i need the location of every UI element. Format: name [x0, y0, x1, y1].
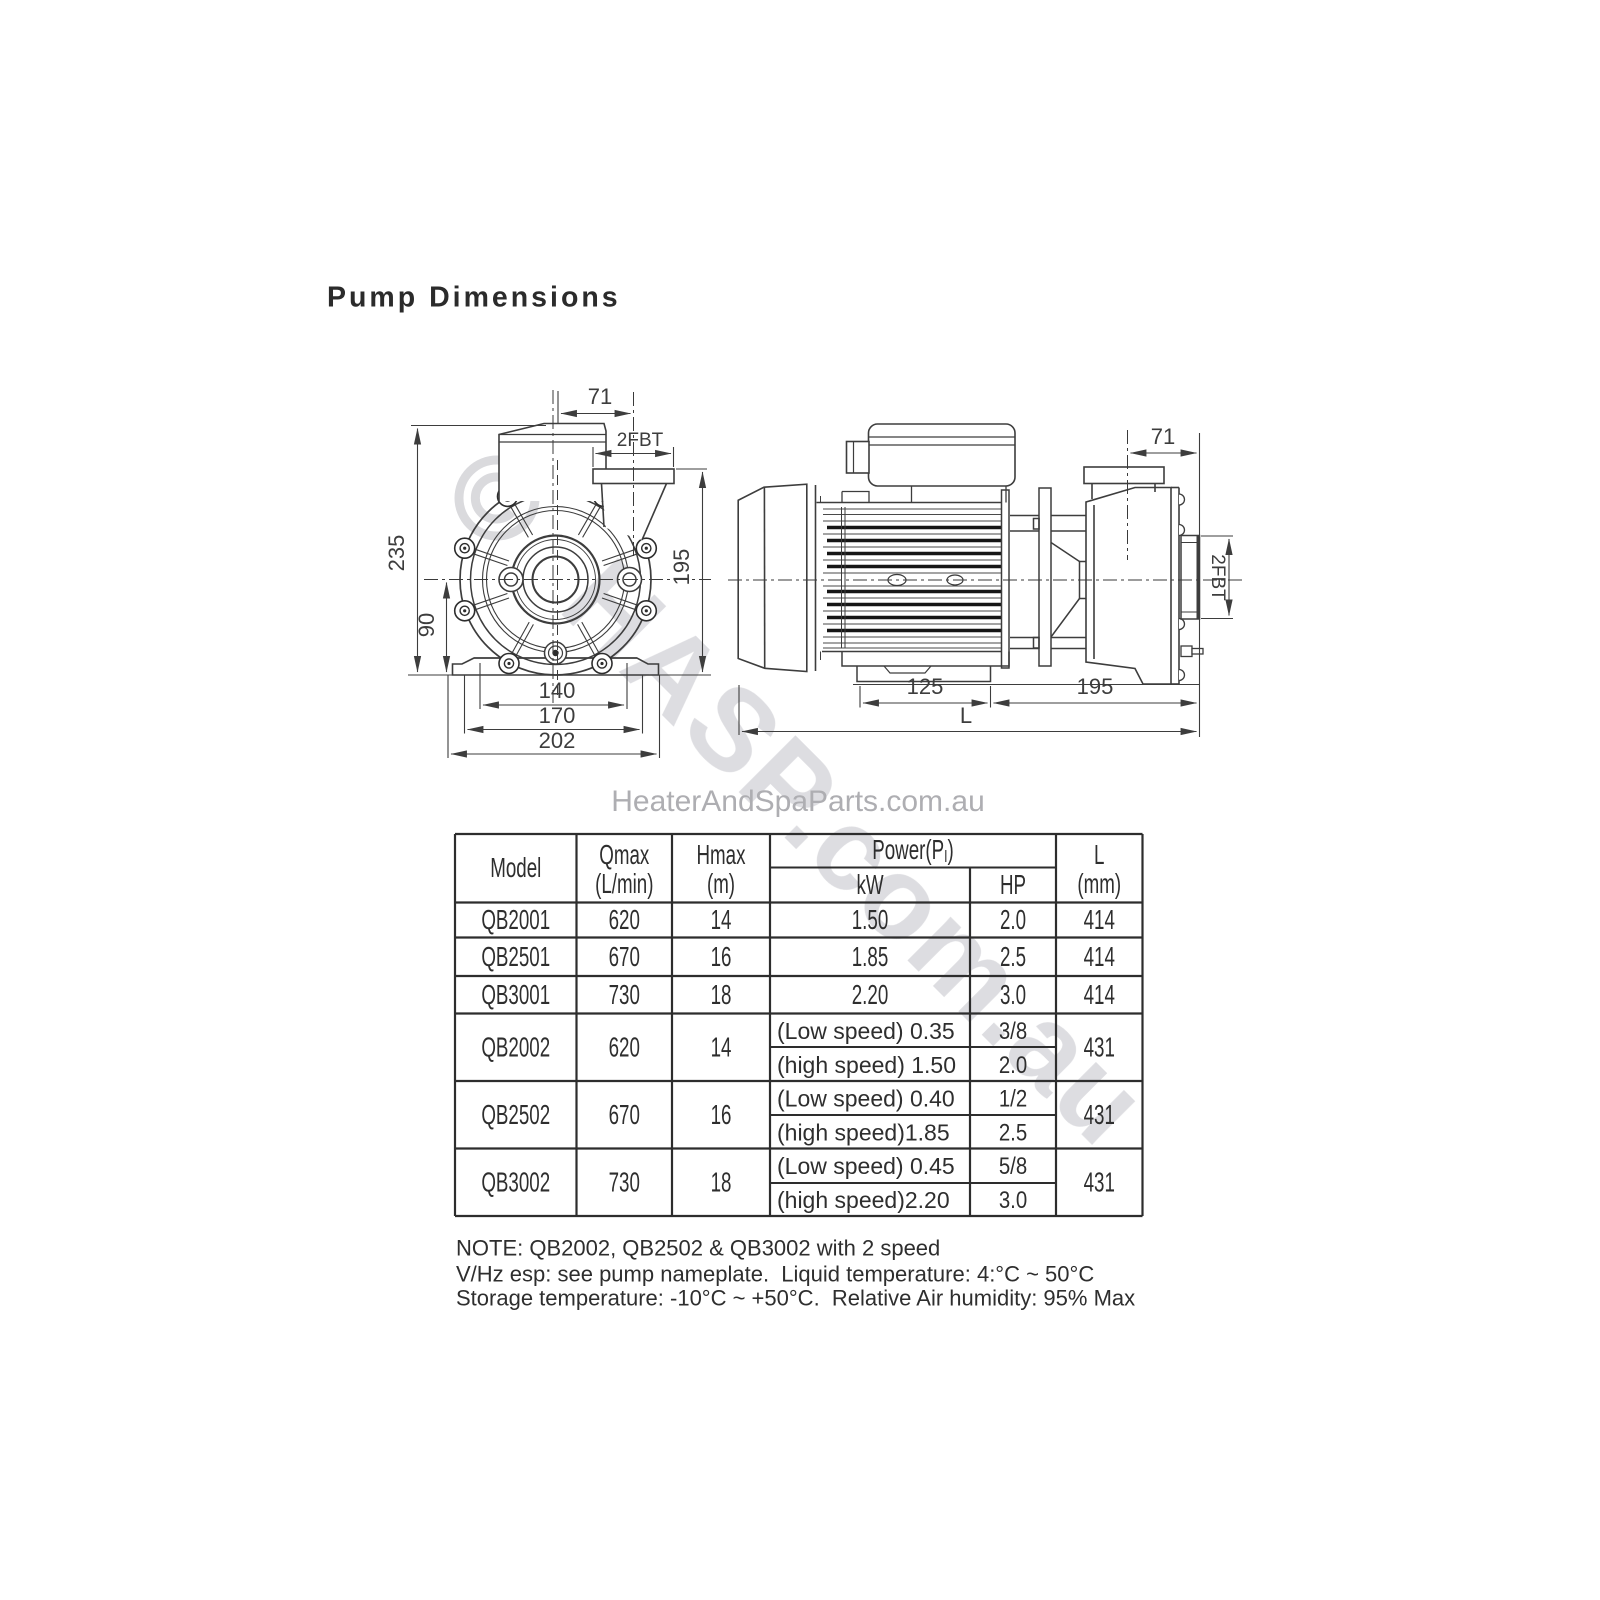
svg-text:195: 195 — [1077, 674, 1114, 699]
svg-text:kW: kW — [856, 869, 883, 901]
svg-text:2.0: 2.0 — [1000, 904, 1026, 936]
svg-text:1/2: 1/2 — [999, 1085, 1027, 1112]
svg-text:QB2501: QB2501 — [481, 941, 550, 973]
svg-text:2.5: 2.5 — [1000, 941, 1026, 973]
svg-text:414: 414 — [1084, 904, 1115, 936]
svg-text:431: 431 — [1084, 1032, 1115, 1064]
svg-text:2FBT: 2FBT — [617, 430, 664, 451]
svg-text:5/8: 5/8 — [999, 1152, 1027, 1179]
svg-text:L: L — [960, 703, 972, 728]
svg-text:1.50: 1.50 — [852, 904, 889, 936]
svg-text:(m): (m) — [707, 868, 735, 900]
svg-text:(Low speed) 0.40: (Low speed) 0.40 — [777, 1086, 955, 1112]
svg-text:Hmax: Hmax — [697, 839, 746, 871]
svg-text:414: 414 — [1084, 941, 1115, 973]
svg-text:670: 670 — [609, 941, 640, 973]
svg-text:414: 414 — [1084, 979, 1115, 1011]
svg-text:71: 71 — [588, 384, 612, 409]
svg-text:(L/min): (L/min) — [595, 868, 653, 900]
svg-text:730: 730 — [609, 979, 640, 1011]
svg-text:90: 90 — [414, 613, 439, 637]
svg-text:Model: Model — [490, 852, 541, 884]
svg-text:Qmax: Qmax — [599, 839, 649, 871]
svg-text:235: 235 — [384, 535, 409, 572]
svg-text:L: L — [1094, 839, 1104, 871]
svg-text:2.5: 2.5 — [999, 1119, 1027, 1146]
svg-text:QB2002: QB2002 — [481, 1032, 550, 1064]
svg-text:2.0: 2.0 — [999, 1051, 1027, 1078]
svg-text:QB3001: QB3001 — [481, 979, 550, 1011]
svg-text:71: 71 — [1151, 424, 1175, 449]
svg-text:431: 431 — [1084, 1167, 1115, 1199]
svg-text:170: 170 — [539, 703, 576, 728]
svg-text:16: 16 — [711, 1099, 732, 1131]
svg-text:3.0: 3.0 — [1000, 979, 1026, 1011]
svg-text:HeaterAndSpaParts.com.au: HeaterAndSpaParts.com.au — [611, 785, 985, 818]
svg-text:125: 125 — [907, 674, 944, 699]
svg-text:16: 16 — [711, 941, 732, 973]
svg-text:18: 18 — [711, 1167, 732, 1199]
svg-text:195: 195 — [669, 549, 694, 586]
svg-text:1.85: 1.85 — [852, 941, 889, 973]
svg-text:V/Hz esp: see pump nameplate.: V/Hz esp: see pump nameplate. Liquid tem… — [456, 1262, 1094, 1287]
svg-text:2FBT: 2FBT — [1207, 554, 1228, 601]
svg-text:(high speed) 1.50: (high speed) 1.50 — [777, 1052, 956, 1078]
svg-text:2.20: 2.20 — [852, 979, 889, 1011]
svg-text:202: 202 — [539, 728, 576, 753]
svg-text:(high speed)2.20: (high speed)2.20 — [777, 1187, 950, 1213]
svg-text:QB3002: QB3002 — [481, 1167, 550, 1199]
svg-text:(high speed)1.85: (high speed)1.85 — [777, 1120, 950, 1146]
svg-text:620: 620 — [609, 904, 640, 936]
svg-text:NOTE: QB2002, QB2502 & QB3002: NOTE: QB2002, QB2502 & QB3002 with 2 spe… — [456, 1236, 940, 1261]
svg-text:(Low speed) 0.45: (Low speed) 0.45 — [777, 1153, 955, 1179]
svg-text:620: 620 — [609, 1032, 640, 1064]
svg-text:Power(PI): Power(PI) — [872, 834, 954, 866]
svg-text:670: 670 — [609, 1099, 640, 1131]
svg-text:3.0: 3.0 — [999, 1186, 1027, 1213]
svg-text:QB2502: QB2502 — [481, 1099, 550, 1131]
svg-text:431: 431 — [1084, 1099, 1115, 1131]
svg-text:Pump Dimensions: Pump Dimensions — [327, 282, 621, 314]
svg-text:3/8: 3/8 — [999, 1017, 1027, 1044]
svg-text:(Low speed) 0.35: (Low speed) 0.35 — [777, 1018, 955, 1044]
svg-text:18: 18 — [711, 979, 732, 1011]
svg-text:Storage temperature: -10°C ~ +: Storage temperature: -10°C ~ +50°C. Rela… — [456, 1286, 1135, 1311]
svg-text:HP: HP — [1000, 869, 1026, 901]
svg-text:14: 14 — [711, 1032, 732, 1064]
svg-text:730: 730 — [609, 1167, 640, 1199]
svg-text:(mm): (mm) — [1077, 868, 1121, 900]
svg-text:14: 14 — [711, 904, 732, 936]
svg-text:140: 140 — [539, 678, 576, 703]
svg-text:QB2001: QB2001 — [481, 904, 550, 936]
